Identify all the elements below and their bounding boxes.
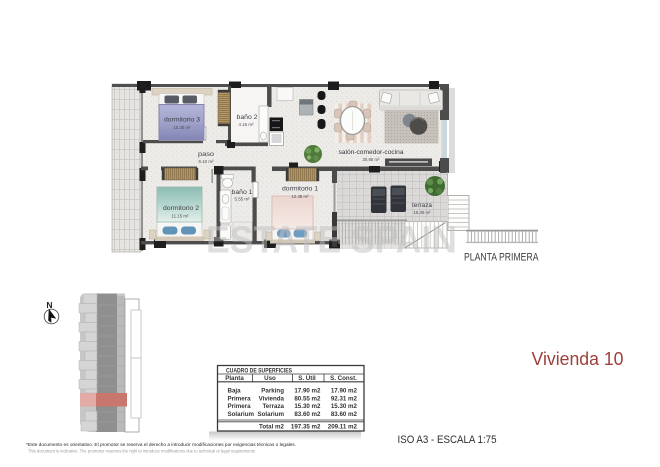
svg-text:ESTATE SPAIN: ESTATE SPAIN [206,220,457,262]
svg-text:197.35 m2: 197.35 m2 [291,424,321,431]
svg-text:dormitorio 3: dormitorio 3 [164,117,200,124]
svg-text:dormitorio 1: dormitorio 1 [282,186,318,193]
svg-text:Uso: Uso [264,375,276,382]
svg-text:17.90 m2: 17.90 m2 [331,388,358,395]
svg-text:terraza: terraza [412,202,432,209]
svg-text:Primera: Primera [228,403,252,410]
svg-text:15.30 m²: 15.30 m² [414,210,431,215]
svg-text:15.30 m2: 15.30 m2 [294,403,321,410]
svg-text:4.15 m²: 4.15 m² [239,122,254,127]
svg-text:paso: paso [198,151,215,158]
svg-text:12.45 m²: 12.45 m² [292,194,309,199]
svg-text:Planta: Planta [225,375,244,382]
svg-text:This document is indicative. T: This document is indicative. The promote… [28,449,256,454]
svg-text:209.11 m2: 209.11 m2 [328,424,358,431]
svg-text:S. Útil: S. Útil [298,375,316,382]
svg-text:CUADRO DE SUPERFICIES: CUADRO DE SUPERFICIES [226,367,292,374]
svg-text:92.31 m2: 92.31 m2 [331,395,358,402]
svg-text:Total m2: Total m2 [259,424,285,431]
svg-text:Baja: Baja [228,388,242,395]
svg-text:Vivienda: Vivienda [259,395,285,402]
svg-text:Solarium: Solarium [258,411,285,418]
svg-text:Parking: Parking [261,388,284,395]
svg-text:83.60 m2: 83.60 m2 [294,411,321,418]
svg-text:10.30 m²: 10.30 m² [174,125,191,130]
svg-text:15.30 m2: 15.30 m2 [331,403,358,410]
svg-text:Vivienda 10: Vivienda 10 [532,348,624,369]
svg-text:Primera: Primera [228,395,252,402]
svg-text:baño 2: baño 2 [237,114,258,121]
svg-text:Solarium: Solarium [228,411,255,418]
svg-text:30.85 m²: 30.85 m² [363,157,380,162]
svg-text:salón-comedor-cocina: salón-comedor-cocina [339,149,404,156]
svg-text:S. Const.: S. Const. [330,375,357,382]
svg-text:17.90 m2: 17.90 m2 [294,388,321,395]
svg-text:dormitorio 2: dormitorio 2 [163,205,199,212]
svg-text:N: N [46,300,52,310]
svg-text:80.55 m2: 80.55 m2 [294,395,321,402]
svg-text:11.15 m²: 11.15 m² [172,214,189,219]
svg-text:83.60 m2: 83.60 m2 [331,411,358,418]
svg-text:*Este documento es orientativo: *Este documento es orientativo. El promo… [26,442,296,447]
svg-text:Terraza: Terraza [262,403,284,410]
svg-text:ISO A3 - ESCALA 1:75: ISO A3 - ESCALA 1:75 [398,434,497,446]
svg-text:6.10 m²: 6.10 m² [199,159,214,164]
svg-text:5.55 m²: 5.55 m² [235,197,250,202]
svg-text:baño 1: baño 1 [232,189,253,196]
svg-text:PLANTA PRIMERA: PLANTA PRIMERA [464,252,539,264]
